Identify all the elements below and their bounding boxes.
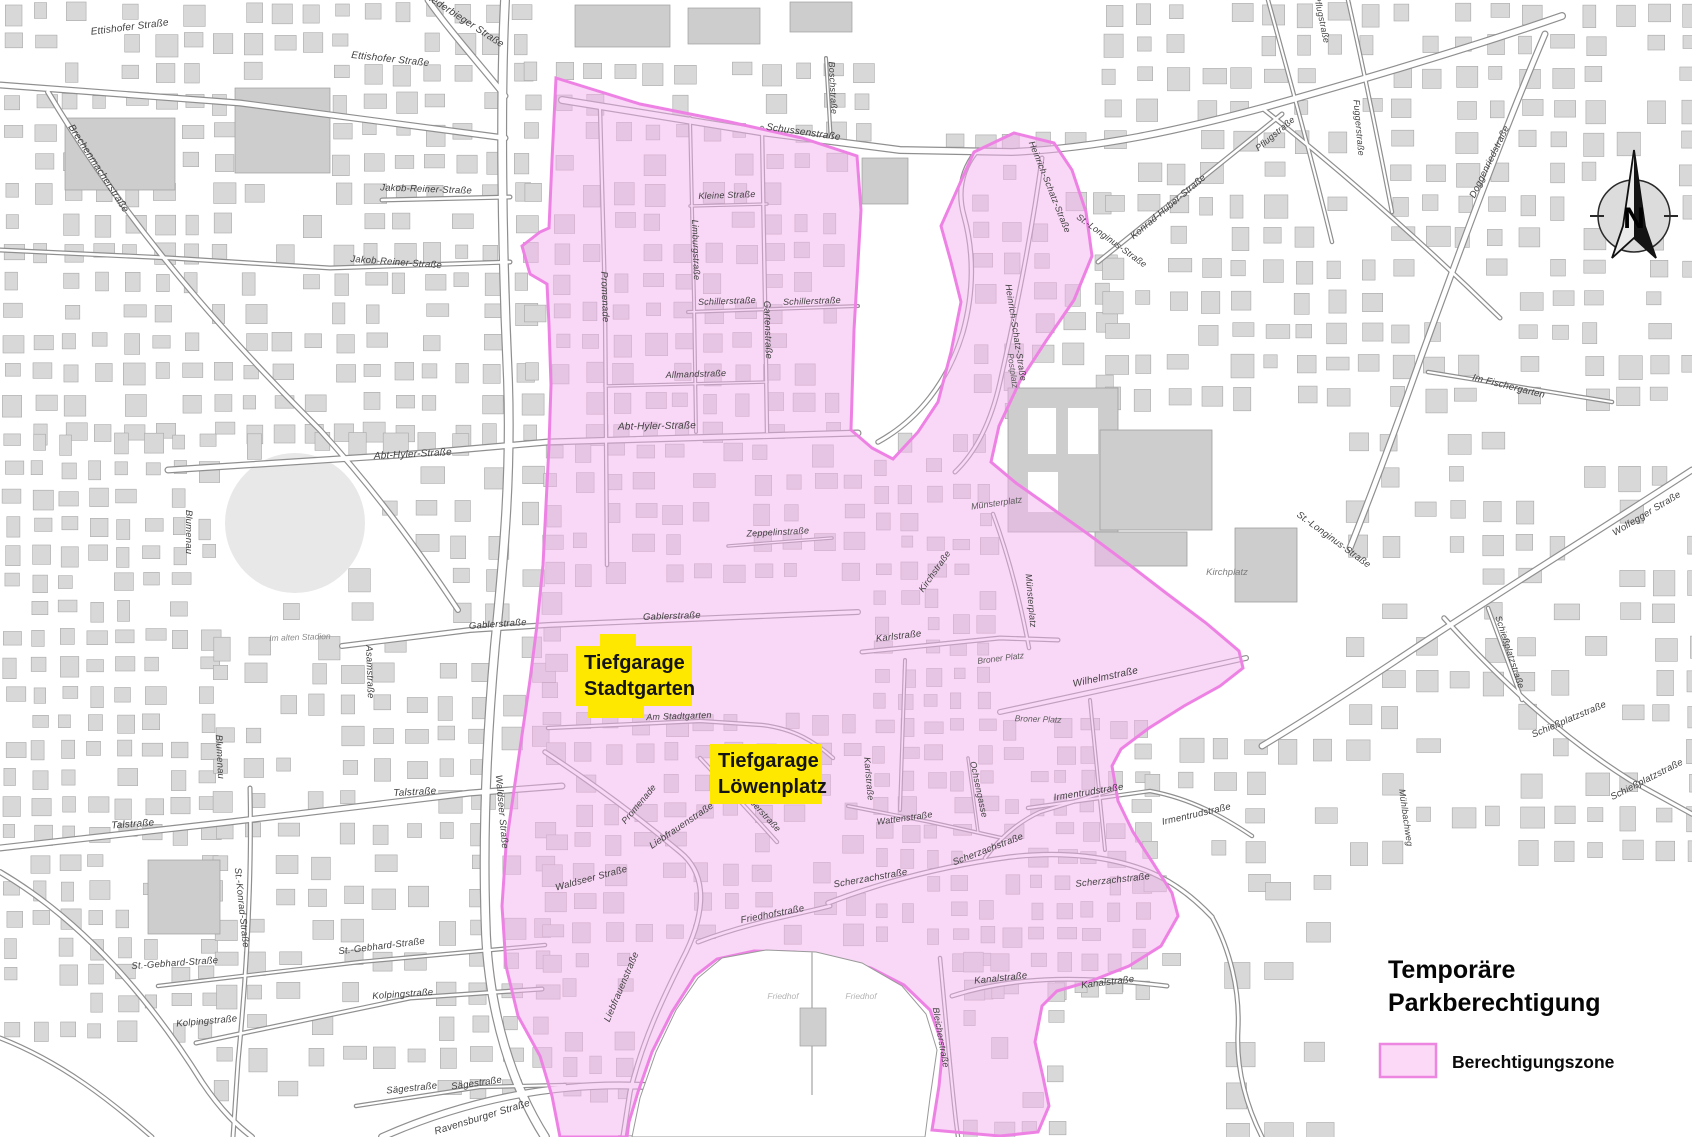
building (62, 463, 76, 479)
building (1347, 740, 1371, 760)
building (119, 938, 132, 958)
building (1264, 195, 1288, 218)
building (1103, 292, 1123, 314)
building (1448, 435, 1471, 455)
building (408, 886, 428, 907)
building (1657, 808, 1673, 822)
building (453, 568, 469, 582)
building (1049, 1011, 1064, 1023)
building (1106, 356, 1129, 375)
building (1483, 569, 1504, 584)
building (1329, 290, 1346, 313)
building (217, 1047, 232, 1061)
building (1621, 603, 1641, 620)
building (1519, 840, 1538, 865)
place-label: Friedhof (845, 991, 878, 1001)
building (1167, 68, 1189, 91)
building (1450, 672, 1469, 689)
building (1551, 132, 1567, 147)
building (117, 548, 130, 568)
building (171, 742, 188, 758)
building (1266, 325, 1290, 339)
building (1296, 261, 1312, 284)
building (313, 920, 334, 939)
building (1519, 130, 1536, 147)
building (33, 910, 50, 924)
building (173, 435, 185, 449)
building (1516, 534, 1533, 550)
building (5, 573, 20, 586)
building (125, 35, 140, 53)
building (1363, 323, 1383, 341)
building (245, 663, 267, 683)
building (35, 125, 57, 142)
building (452, 214, 473, 229)
building (6, 215, 18, 229)
building (1617, 387, 1640, 406)
building (1262, 36, 1276, 56)
building (88, 855, 104, 867)
building (470, 1047, 492, 1062)
building (406, 729, 429, 743)
building (1584, 133, 1604, 156)
building (483, 245, 498, 260)
building (6, 546, 20, 566)
building (5, 461, 23, 474)
building (246, 305, 267, 324)
building (1265, 162, 1285, 176)
building (3, 658, 16, 679)
building (199, 797, 213, 810)
garage-label-loewenplatz: Tiefgarage Löwenplatz (710, 744, 827, 804)
building (1648, 101, 1666, 124)
building (440, 663, 457, 678)
building (3, 824, 15, 837)
building (64, 273, 79, 288)
building (408, 1049, 425, 1062)
building (115, 433, 129, 454)
highlight-box (588, 706, 644, 718)
building (422, 364, 437, 378)
building (116, 910, 129, 928)
building (332, 155, 349, 176)
building (1171, 226, 1187, 243)
building (215, 952, 238, 965)
building (1619, 466, 1641, 492)
building (171, 771, 186, 791)
garage-label-line: Löwenplatz (718, 776, 827, 798)
building (32, 630, 45, 646)
building (1649, 4, 1671, 22)
building (58, 715, 70, 728)
building (247, 434, 261, 460)
building (63, 686, 78, 698)
building (504, 1016, 518, 1029)
building (365, 65, 382, 85)
building (278, 1081, 298, 1096)
building (277, 982, 300, 998)
building (522, 502, 538, 525)
building (247, 985, 261, 999)
building (274, 425, 295, 443)
building (1423, 69, 1442, 88)
building (524, 305, 546, 322)
building (454, 273, 469, 287)
street-label: Talstraße (393, 786, 437, 799)
building (1392, 325, 1409, 343)
building (1679, 165, 1692, 186)
building (395, 362, 414, 380)
building (64, 365, 78, 382)
building (1486, 259, 1507, 275)
building (90, 518, 108, 536)
building (278, 823, 300, 836)
building (1203, 68, 1227, 84)
building (1489, 66, 1502, 79)
building (1315, 808, 1337, 824)
building (243, 396, 256, 409)
building (1551, 163, 1565, 183)
title-line-1: Temporäre (1388, 956, 1515, 984)
building (153, 336, 170, 349)
building (1650, 387, 1667, 400)
building (1307, 923, 1331, 943)
building (1391, 99, 1411, 118)
building (1555, 806, 1575, 824)
building (303, 215, 321, 237)
building (1619, 356, 1642, 380)
building (1327, 323, 1347, 344)
building (333, 34, 348, 46)
building (1585, 66, 1602, 81)
building (1456, 3, 1471, 21)
building (1132, 800, 1151, 813)
building (1231, 260, 1245, 275)
building (1138, 67, 1153, 81)
building (313, 664, 327, 684)
building (33, 490, 53, 510)
building (202, 714, 215, 733)
building (1167, 164, 1185, 185)
building (5, 96, 20, 110)
building (1212, 841, 1226, 856)
building (1518, 638, 1536, 656)
building (33, 771, 48, 790)
map-canvas: Ettishofer StraßeEttishofer StraßeNieder… (0, 0, 1692, 1137)
building (3, 632, 21, 646)
building (115, 462, 128, 475)
building (183, 395, 201, 413)
building (1327, 261, 1340, 279)
building (483, 395, 504, 414)
building (364, 364, 380, 376)
building (337, 365, 356, 383)
building (214, 123, 236, 137)
building (1264, 227, 1281, 243)
street-label: Blumenau (183, 510, 194, 555)
building (1169, 389, 1191, 405)
building (1423, 36, 1438, 53)
building (343, 982, 359, 1002)
building (1350, 433, 1369, 451)
building (4, 768, 16, 785)
building (1555, 841, 1574, 861)
building (1450, 537, 1464, 553)
building (392, 213, 410, 229)
building (1381, 707, 1397, 729)
building (1656, 639, 1678, 662)
building (214, 637, 230, 661)
building (1456, 133, 1478, 154)
building (584, 63, 602, 78)
building (340, 823, 355, 844)
building (60, 855, 81, 871)
building (440, 1017, 455, 1041)
building (349, 569, 371, 592)
building (87, 741, 101, 755)
building (172, 993, 192, 1005)
building (91, 602, 104, 622)
garage-label-stadtgarten: Tiefgarage Stadtgarten (576, 634, 695, 718)
street-label: Abt-Hyler-Straße (617, 420, 696, 432)
building (1246, 842, 1265, 863)
building (116, 630, 135, 643)
building (118, 1021, 137, 1042)
building (3, 797, 20, 817)
building (119, 996, 139, 1012)
building (91, 993, 103, 1012)
building (345, 886, 364, 904)
building (66, 305, 80, 319)
building (1585, 467, 1606, 488)
building (364, 154, 384, 172)
building (90, 488, 109, 507)
building (526, 363, 539, 380)
building (245, 184, 264, 202)
building (1521, 196, 1536, 216)
building (1555, 101, 1576, 118)
building (281, 696, 297, 714)
building (64, 396, 86, 417)
building (367, 333, 388, 347)
building (525, 183, 542, 201)
building (145, 939, 158, 959)
building (145, 433, 164, 453)
building (277, 758, 291, 771)
building (118, 769, 138, 786)
street-label: Limburgstraße (690, 219, 702, 280)
building (277, 889, 295, 905)
building (426, 275, 446, 291)
building (424, 154, 444, 168)
building (1688, 536, 1692, 554)
building (1683, 4, 1692, 27)
building (1650, 260, 1668, 277)
building (1623, 705, 1645, 720)
building (392, 273, 404, 294)
building (1588, 843, 1603, 858)
building (198, 966, 214, 979)
building (1583, 323, 1597, 344)
building (185, 333, 199, 351)
building (1422, 195, 1438, 211)
building (1585, 291, 1604, 305)
building (1232, 3, 1253, 21)
building (308, 889, 326, 906)
building (33, 575, 48, 593)
building (114, 573, 133, 591)
building (1232, 227, 1249, 250)
building (1683, 196, 1692, 219)
building (125, 395, 146, 417)
building (512, 5, 532, 20)
building (1382, 468, 1400, 487)
building (283, 603, 299, 619)
building (89, 964, 104, 984)
building (514, 153, 529, 174)
building (247, 334, 268, 351)
building (246, 728, 260, 743)
building (96, 272, 109, 291)
building (156, 363, 169, 379)
building (1519, 228, 1540, 247)
building (1296, 324, 1312, 338)
building (333, 96, 346, 115)
building (2, 489, 21, 503)
building (214, 183, 236, 204)
building (556, 62, 574, 79)
building (421, 467, 445, 484)
building (1553, 68, 1575, 88)
building (1327, 389, 1350, 407)
building (125, 334, 140, 355)
building (186, 215, 198, 235)
building (1657, 670, 1674, 695)
building (1553, 739, 1568, 756)
large-building (1235, 528, 1297, 602)
street-label: Blumenau (213, 734, 226, 779)
building (1199, 325, 1218, 345)
building (1137, 99, 1158, 122)
building (34, 3, 46, 19)
building (31, 856, 50, 874)
building (1104, 34, 1123, 57)
factory-building (575, 5, 670, 47)
building (305, 334, 322, 348)
building (1298, 35, 1311, 55)
place-label: Kirchplatz (1206, 567, 1248, 578)
building (1653, 705, 1670, 721)
building (146, 799, 164, 815)
building (116, 657, 135, 671)
building (408, 824, 422, 838)
building (1586, 101, 1606, 124)
building (214, 362, 232, 380)
building (1451, 501, 1466, 519)
building (857, 124, 872, 142)
building (526, 95, 541, 110)
building (156, 215, 176, 235)
building (375, 855, 397, 872)
building (366, 273, 388, 286)
building (1383, 604, 1408, 619)
building (504, 695, 526, 716)
highlight-box (600, 634, 636, 648)
building (1683, 36, 1692, 49)
building (199, 687, 213, 704)
stadium-circle (225, 453, 365, 593)
legend-swatch (1380, 1044, 1436, 1077)
building (142, 743, 163, 756)
building (1265, 963, 1294, 980)
building (203, 993, 219, 1005)
building (1202, 130, 1225, 149)
building (1298, 386, 1317, 403)
street-label: Promenade (598, 271, 611, 322)
building (93, 96, 106, 109)
building (63, 797, 76, 813)
building (145, 657, 159, 671)
building (364, 94, 387, 108)
building (89, 797, 109, 812)
building (125, 272, 140, 291)
building (524, 62, 537, 81)
building (523, 466, 545, 484)
building (216, 422, 235, 434)
garage-label-line: Stadtgarten (584, 678, 695, 700)
building (34, 688, 46, 703)
building (366, 305, 379, 324)
building (1134, 389, 1150, 411)
building (87, 631, 108, 645)
building (342, 726, 364, 746)
building (374, 759, 390, 782)
building (1307, 1123, 1334, 1137)
building (1491, 3, 1510, 17)
building (91, 687, 104, 708)
building (1620, 570, 1645, 586)
north-letter: N (1623, 202, 1645, 235)
building (31, 461, 42, 475)
building (1231, 354, 1254, 378)
building (33, 363, 52, 379)
building (87, 660, 104, 672)
building (1588, 808, 1603, 822)
building (1138, 37, 1152, 51)
building (373, 1047, 395, 1069)
building (946, 134, 964, 147)
building (5, 5, 22, 26)
building (89, 911, 103, 925)
street-label: Gablerstraße (643, 610, 701, 623)
building (272, 332, 292, 351)
building (396, 3, 410, 22)
building (515, 273, 528, 290)
building (62, 740, 75, 758)
monastery-courtyard (1028, 408, 1056, 454)
building (115, 799, 131, 819)
building (157, 274, 170, 291)
building (172, 489, 185, 508)
building (116, 489, 137, 503)
building (422, 396, 436, 411)
building (1106, 324, 1130, 339)
building (1415, 502, 1436, 516)
monastery-courtyard (1068, 408, 1098, 454)
building (425, 33, 439, 51)
building (249, 637, 271, 655)
building (145, 519, 163, 532)
